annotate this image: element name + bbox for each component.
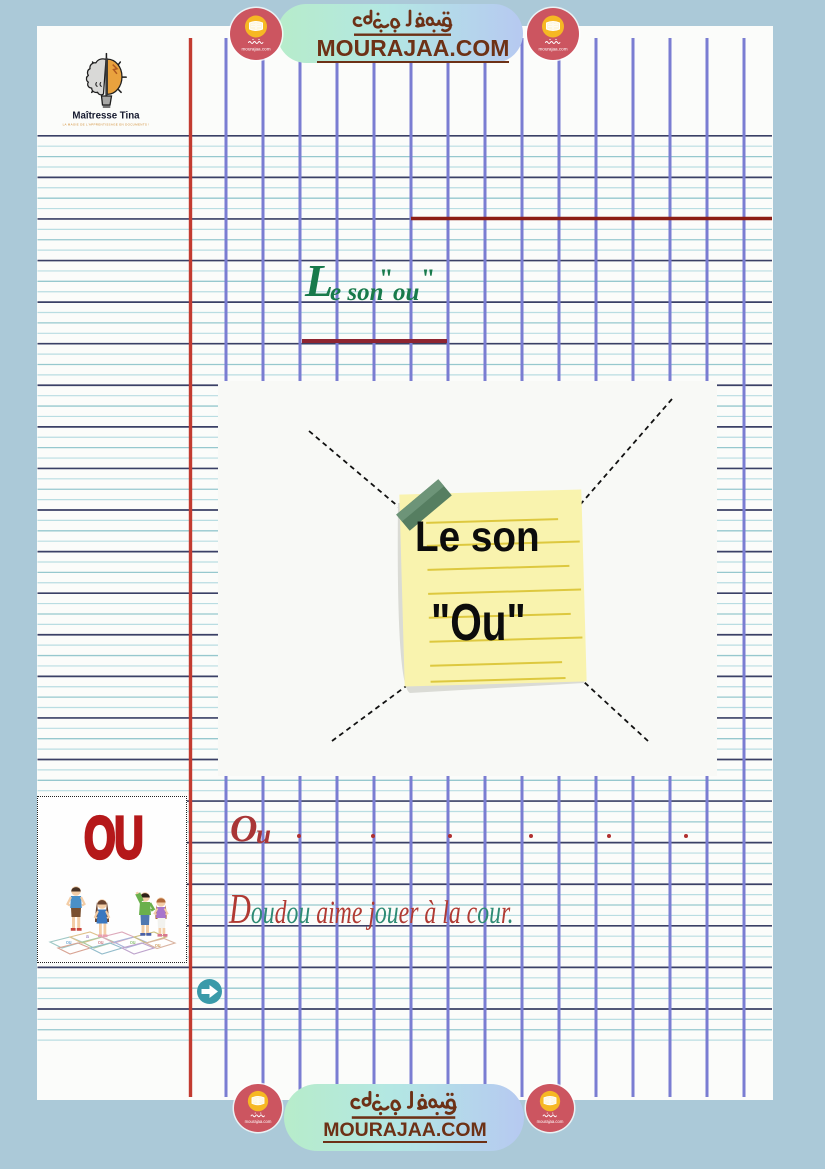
svg-text:ou: ou xyxy=(155,943,161,949)
svg-text:Maîtresse Tina: Maîtresse Tina xyxy=(72,111,140,122)
svg-text:ou: ou xyxy=(98,940,104,946)
svg-text:"Ou": "Ou" xyxy=(431,593,526,651)
svg-text:Le son: Le son xyxy=(415,512,540,560)
svg-text:a: a xyxy=(86,934,89,940)
svg-text:ou: ou xyxy=(130,940,136,946)
svg-text:LA MAGIE DE L'APPRENTISSAGE EN: LA MAGIE DE L'APPRENTISSAGE EN DOCUMENTS… xyxy=(63,123,150,127)
svg-text:mourajaa.com: mourajaa.com xyxy=(241,47,270,52)
svg-text:mourajaa.com: mourajaa.com xyxy=(538,47,567,52)
svg-text:ou: ou xyxy=(66,940,72,946)
svg-text:mourajaa.com: mourajaa.com xyxy=(537,1119,564,1124)
svg-text:mourajaa.com: mourajaa.com xyxy=(245,1119,272,1124)
